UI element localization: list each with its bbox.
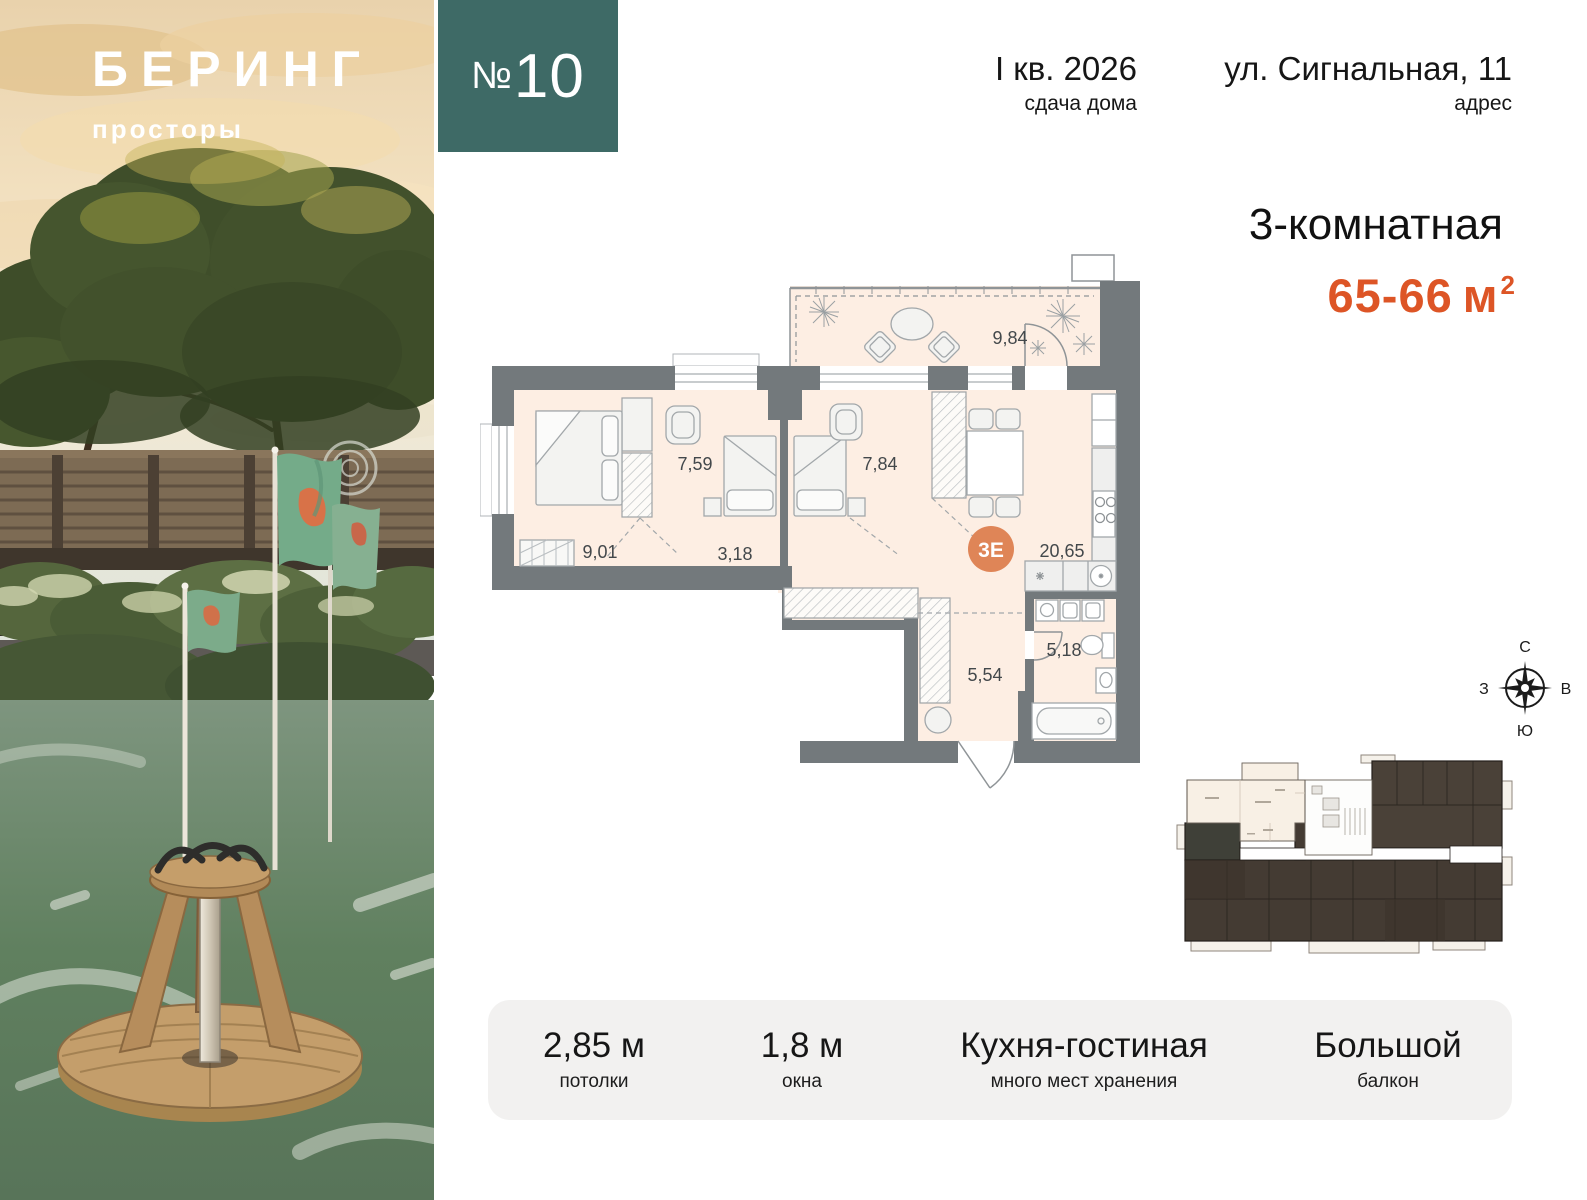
- spec-kitchen-living: Кухня-гостиная много мест хранения: [904, 1027, 1264, 1094]
- spec-balcony: Большой балкон: [1264, 1027, 1512, 1094]
- spec-label: окна: [782, 1071, 822, 1093]
- brand-name: БЕРИНГ: [92, 44, 373, 94]
- room-label-bedroom-mid: 7,59: [677, 454, 712, 474]
- spec-label: много мест хранения: [991, 1071, 1178, 1093]
- building-badge: №10: [438, 0, 618, 152]
- spec-value: Большой: [1314, 1027, 1461, 1066]
- spec-value: 1,8 м: [761, 1027, 843, 1066]
- compass-west: З: [1479, 681, 1489, 698]
- spec-ceilings: 2,85 м потолки: [488, 1027, 700, 1094]
- badge-number-sign: №: [471, 55, 512, 98]
- completion-label: сдача дома: [1025, 92, 1137, 116]
- address-label: адрес: [1454, 92, 1512, 116]
- exterior-unit: [1072, 255, 1114, 281]
- compass-icon: С В Ю З: [1468, 628, 1583, 743]
- unit-marker: 3Е: [968, 526, 1014, 572]
- room-label-kitchen-living: 20,65: [1039, 541, 1084, 561]
- mini-plan-core: [1305, 780, 1372, 855]
- floor-plan: 3Е 9,84 7,59 7,84 9,01 3,18 20,65 5,54 5…: [480, 248, 1140, 793]
- compass-north: С: [1519, 639, 1531, 656]
- room-label-balcony: 9,84: [992, 328, 1027, 348]
- playground-photo-illustration: [0, 0, 434, 1200]
- hero-photo: БЕРИНГ просторы: [0, 0, 434, 1200]
- spec-value: 2,85 м: [543, 1027, 645, 1066]
- address-block: ул. Сигнальная, 11 адрес: [1224, 50, 1512, 116]
- completion-block: I кв. 2026 сдача дома: [995, 50, 1137, 116]
- badge-number: 10: [514, 41, 585, 112]
- brand-logo: БЕРИНГ просторы: [92, 44, 373, 142]
- compass-south: Ю: [1517, 723, 1533, 740]
- room-label-bedroom-left: 9,01: [582, 542, 617, 562]
- brand-subtitle: просторы: [92, 116, 373, 142]
- unit-code: 3Е: [978, 539, 1004, 562]
- compass-east: В: [1561, 681, 1572, 698]
- room-label-bathroom: 5,18: [1046, 640, 1081, 660]
- room-label-corridor: 3,18: [717, 544, 752, 564]
- apartment-area-unit: м: [1463, 269, 1499, 322]
- apartment-area: 65-66м2: [1328, 268, 1516, 323]
- completion-value: I кв. 2026: [995, 50, 1137, 88]
- building-mini-plan: [1175, 753, 1567, 960]
- apartment-area-value: 65-66: [1328, 269, 1453, 322]
- spec-windows: 1,8 м окна: [700, 1027, 904, 1094]
- room-label-bedroom-right: 7,84: [862, 454, 897, 474]
- address-value: ул. Сигнальная, 11: [1224, 50, 1512, 88]
- spec-value: Кухня-гостиная: [960, 1027, 1208, 1066]
- specs-bar: 2,85 м потолки 1,8 м окна Кухня-гостиная…: [488, 1000, 1512, 1120]
- spec-label: балкон: [1357, 1071, 1419, 1093]
- room-label-hallway: 5,54: [967, 665, 1002, 685]
- apartment-area-superscript: 2: [1501, 270, 1516, 300]
- apartment-type: 3-комнатная: [1249, 200, 1503, 250]
- spec-label: потолки: [559, 1071, 628, 1093]
